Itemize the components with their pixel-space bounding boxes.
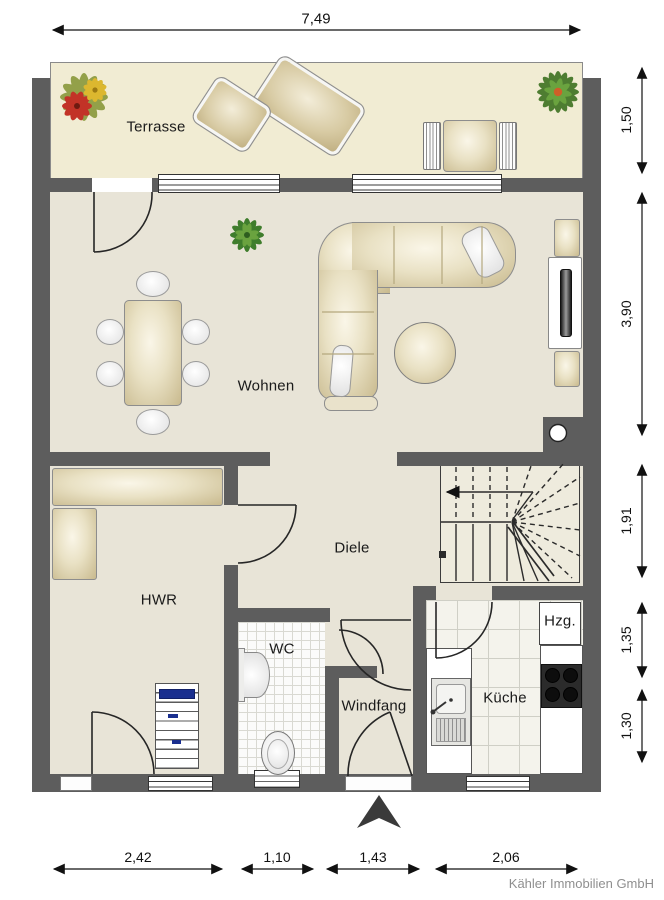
dimension-label: 1,43 (359, 849, 386, 865)
dimension-label: 2,06 (492, 849, 519, 865)
dimension-label: 2,42 (124, 849, 151, 865)
dimension-lines (53, 30, 642, 869)
door (339, 630, 383, 674)
dimension-label: 1,91 (618, 507, 634, 534)
dimension-label: 1,50 (618, 106, 634, 133)
floor-plan: Terrasse Wohnen Diele HWR WC Windfang Kü… (0, 0, 664, 900)
door (94, 192, 152, 252)
door (348, 712, 412, 776)
plan-linework (0, 0, 664, 900)
faucet-icon (431, 698, 453, 714)
room-label-hzg: Hzg. (544, 613, 576, 630)
door (436, 602, 492, 658)
door (92, 712, 154, 774)
room-label-windfang: Windfang (342, 698, 407, 715)
company-credit: Kähler Immobilien GmbH (509, 876, 654, 891)
flower-icon (60, 73, 108, 122)
room-label-hwr: HWR (141, 592, 177, 609)
room-label-wohnen: Wohnen (238, 378, 295, 395)
dimension-label: 1,10 (263, 849, 290, 865)
chimney-flue (550, 425, 567, 442)
room-label-wc: WC (269, 641, 294, 658)
room-label-kueche: Küche (483, 690, 527, 707)
room-label-terrasse: Terrasse (126, 119, 185, 136)
north-arrow-icon (357, 795, 401, 828)
door (238, 505, 296, 563)
room-label-diele: Diele (334, 540, 369, 557)
dimension-label: 7,49 (301, 11, 330, 28)
dimension-label: 3,90 (618, 300, 634, 327)
sofa-seams (322, 226, 482, 354)
door (341, 620, 411, 690)
dimension-label: 1,35 (618, 626, 634, 653)
plant-icon (537, 71, 580, 114)
dimension-label: 1,30 (618, 712, 634, 739)
staircase (439, 463, 580, 581)
plant-icon (230, 218, 264, 252)
